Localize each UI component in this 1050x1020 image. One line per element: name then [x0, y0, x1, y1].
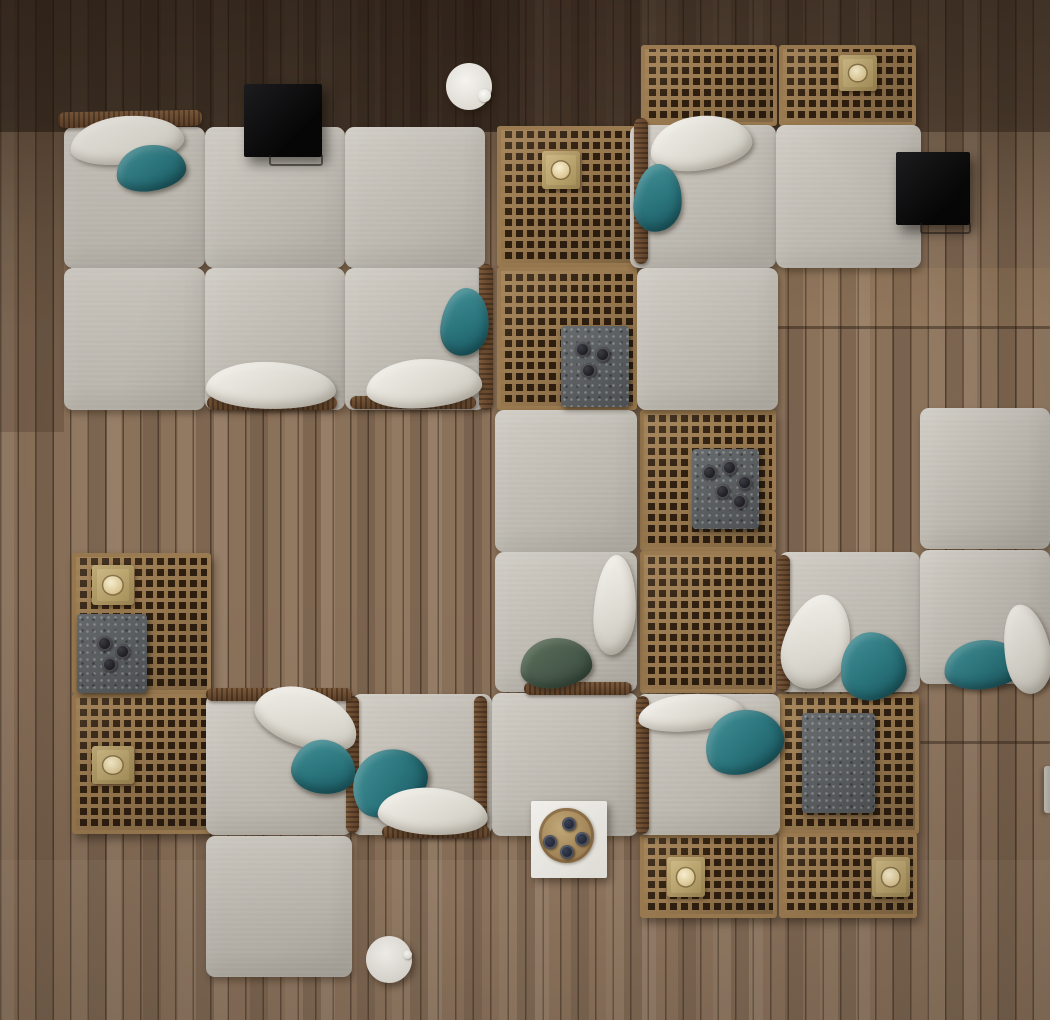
candle-block-west-lower [92, 746, 134, 784]
cup [102, 657, 117, 672]
cup [595, 347, 610, 362]
cup [732, 494, 747, 509]
cup [115, 644, 130, 659]
table-knob [403, 950, 412, 959]
lattice-panel-topright-left [641, 45, 777, 126]
cup [581, 363, 596, 378]
round-side-table-bottom [366, 936, 412, 983]
round-side-table-top [446, 63, 492, 110]
cushion-ottoman-bottomleft [206, 836, 352, 977]
cup [722, 460, 737, 475]
plank-seam-right-upper [776, 326, 1050, 329]
cup [737, 475, 752, 490]
cushion-topright-below [637, 268, 778, 410]
black-side-table-topleft [244, 84, 322, 157]
cup [560, 845, 574, 859]
cup [575, 342, 590, 357]
table-knob [478, 89, 491, 102]
cup [562, 817, 576, 831]
candle-block-topright [839, 55, 877, 91]
cushion-middle-upper [495, 410, 637, 552]
candle-block-mid-top [542, 151, 580, 189]
stone-tray-center-right [692, 449, 759, 529]
stone-tray-right-plain [802, 713, 875, 813]
cup [715, 484, 730, 499]
floor-shade-left-strip [0, 132, 64, 432]
cup [97, 636, 112, 651]
floor-shade-mid-top [380, 0, 640, 130]
lattice-panel-bottom-pair-left [640, 834, 777, 918]
candle-block-bottom-right [872, 857, 910, 897]
cushion-topleft-r2c1 [64, 268, 205, 410]
lattice-panel-center-right-lower [640, 551, 776, 693]
deck-sliver-right-edge [1044, 766, 1050, 813]
stone-tray-west [77, 614, 147, 693]
scene: Overhead 3D render: modular outdoor loun… [0, 0, 1050, 1020]
candle-block-bottom-left [667, 857, 705, 897]
cup [543, 835, 557, 849]
tray-table-bottom-center [531, 801, 607, 878]
candle-block-west-upper [92, 565, 134, 605]
cup [575, 832, 589, 846]
floor-shade-right-gold [778, 268, 1050, 326]
plank-seam-right-lower [920, 741, 1050, 744]
lattice-panel-mid-top [497, 126, 637, 267]
cushion-far-right-upper [920, 408, 1050, 549]
black-side-table-topright [896, 152, 970, 225]
stone-tray-mid [561, 326, 629, 407]
cup [702, 465, 717, 480]
cushion-topleft-r1c3 [345, 127, 485, 268]
